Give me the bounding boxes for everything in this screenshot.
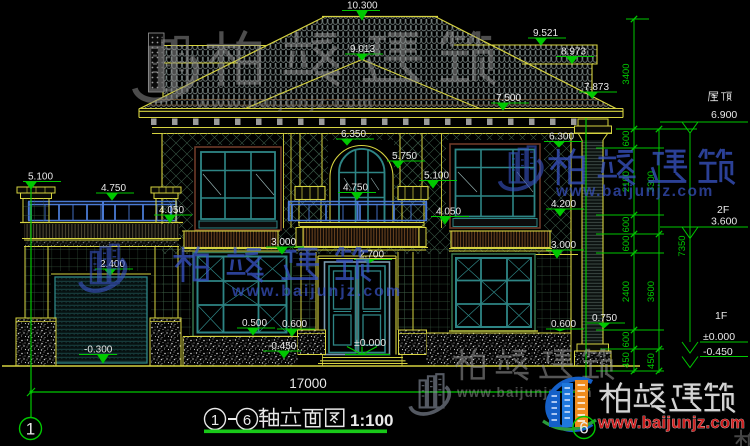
svg-text:9.521: 9.521: [533, 28, 558, 39]
svg-text:7.500: 7.500: [496, 93, 521, 104]
svg-text:1: 1: [26, 420, 35, 439]
svg-text:600: 600: [621, 131, 632, 147]
svg-text:-0.300: -0.300: [84, 345, 113, 356]
svg-text:4.750: 4.750: [343, 183, 368, 194]
svg-text:-0.450: -0.450: [703, 346, 733, 358]
svg-text:600: 600: [621, 332, 632, 348]
svg-text:0.500: 0.500: [242, 318, 267, 329]
svg-text:±0.000: ±0.000: [354, 337, 386, 349]
svg-text:www.baijunjz.com: www.baijunjz.com: [195, 93, 375, 112]
svg-text:3400: 3400: [621, 63, 632, 84]
svg-text:4.050: 4.050: [436, 207, 461, 218]
svg-text:5.100: 5.100: [28, 172, 53, 183]
svg-text:7.873: 7.873: [584, 82, 609, 93]
svg-text:4.050: 4.050: [159, 205, 184, 216]
svg-text:www.baijunjz.com: www.baijunjz.com: [231, 283, 402, 300]
svg-text:4.750: 4.750: [101, 183, 126, 194]
svg-text:3600: 3600: [646, 281, 657, 302]
svg-text:450: 450: [621, 352, 632, 368]
svg-text:1: 1: [211, 412, 219, 429]
svg-text:450: 450: [646, 353, 657, 369]
svg-text:5.750: 5.750: [392, 151, 417, 162]
svg-text:9.013: 9.013: [350, 44, 375, 55]
svg-text:www.baijunjz.com: www.baijunjz.com: [555, 183, 714, 200]
svg-text:6: 6: [243, 412, 251, 429]
svg-text:www.baijunjz.com: www.baijunjz.com: [597, 414, 745, 432]
svg-text:3.000: 3.000: [271, 237, 296, 248]
svg-text:2F: 2F: [717, 204, 729, 216]
svg-text:600: 600: [621, 217, 632, 233]
svg-text:±0.000: ±0.000: [703, 331, 735, 343]
svg-text:1F: 1F: [715, 310, 727, 322]
svg-text:2400: 2400: [621, 281, 632, 302]
svg-text:7350: 7350: [677, 235, 688, 256]
svg-text:6.300: 6.300: [549, 132, 574, 143]
svg-text:6: 6: [579, 419, 588, 438]
svg-text:0.600: 0.600: [551, 319, 576, 330]
svg-text:17000: 17000: [289, 376, 327, 391]
svg-text:0.750: 0.750: [592, 313, 617, 324]
svg-text:0.600: 0.600: [282, 319, 307, 330]
svg-text:4.200: 4.200: [551, 199, 576, 210]
svg-text:6.350: 6.350: [341, 129, 366, 140]
svg-text:-0.450: -0.450: [268, 341, 297, 352]
svg-text:1:100: 1:100: [350, 411, 393, 430]
svg-text:10.300: 10.300: [347, 1, 378, 12]
svg-text:600: 600: [621, 236, 632, 252]
svg-text:8.973: 8.973: [561, 47, 586, 58]
svg-text:6.900: 6.900: [711, 109, 737, 121]
svg-text:3.000: 3.000: [551, 240, 576, 251]
svg-text:3.600: 3.600: [711, 216, 737, 228]
svg-text:5.100: 5.100: [424, 171, 449, 182]
